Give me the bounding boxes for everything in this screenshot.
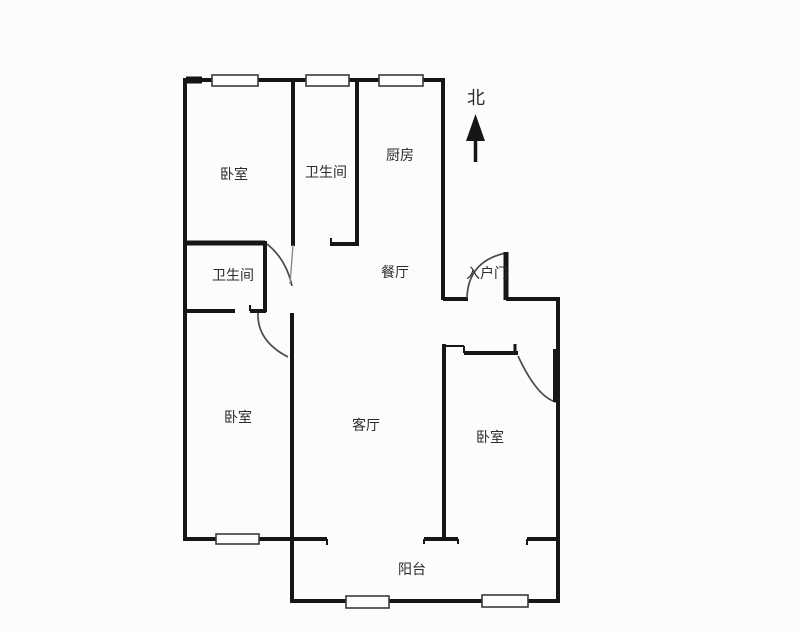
door-arc [258, 313, 288, 357]
window [216, 534, 259, 544]
room-label-bathroom-top: 卫生间 [305, 165, 347, 181]
room-label-living-room: 客厅 [352, 417, 380, 434]
window [482, 595, 528, 607]
north-arrow-head-icon [466, 114, 485, 141]
window [212, 75, 258, 86]
room-label-dining-room: 餐厅 [381, 265, 409, 281]
window [379, 75, 423, 86]
door-leaf [290, 245, 293, 284]
room-label-bedroom-bottom-right: 卧室 [476, 429, 504, 446]
room-label-entry-door: 入户门 [466, 265, 508, 282]
window [306, 75, 349, 86]
room-label-balcony: 阳台 [398, 562, 426, 578]
window [346, 596, 389, 608]
floor-plan-page: 卧室卫生间厨房卫生间餐厅入户门卧室客厅卧室阳台北 [0, 0, 800, 632]
room-label-bedroom-bottom-left: 卧室 [224, 409, 252, 426]
door-arc [518, 356, 556, 402]
floor-plan-image: 卧室卫生间厨房卫生间餐厅入户门卧室客厅卧室阳台北 [0, 0, 800, 632]
room-label-kitchen: 厨房 [386, 148, 414, 164]
room-label-bedroom-top-left: 卧室 [220, 166, 248, 183]
door-arc [267, 244, 292, 286]
north-label: 北 [467, 88, 485, 109]
room-label-bathroom-middle: 卫生间 [212, 268, 254, 284]
